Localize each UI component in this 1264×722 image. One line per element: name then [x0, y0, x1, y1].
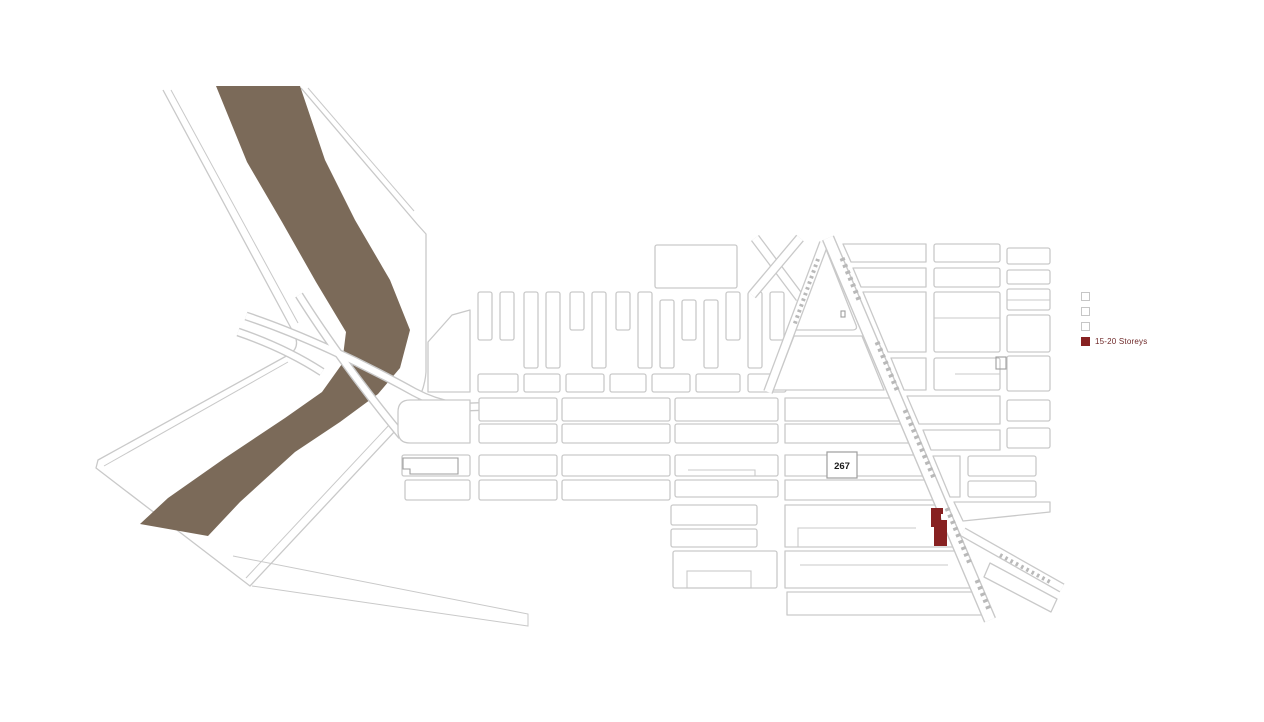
site-context-map: 267 15-20 Storeys: [0, 0, 1264, 722]
corridor-sliver: [233, 556, 528, 626]
empty-square-swatch-icon: [1081, 307, 1090, 316]
map-canvas: 267: [0, 0, 1264, 722]
legend: 15-20 Storeys: [1081, 292, 1147, 352]
empty-square-swatch-icon: [1081, 292, 1090, 301]
river: [140, 86, 410, 536]
legend-item-3[interactable]: [1081, 322, 1147, 331]
empty-square-swatch-icon: [1081, 322, 1090, 331]
street-number-badge: 267: [827, 452, 857, 478]
legend-item-2[interactable]: [1081, 307, 1147, 316]
street-number-label: 267: [834, 461, 850, 472]
legend-item-label: 15-20 Storeys: [1095, 337, 1147, 346]
legend-item-1[interactable]: [1081, 292, 1147, 301]
legend-item-15-20-storeys[interactable]: 15-20 Storeys: [1081, 337, 1147, 346]
filled-square-swatch-icon: [1081, 337, 1090, 346]
